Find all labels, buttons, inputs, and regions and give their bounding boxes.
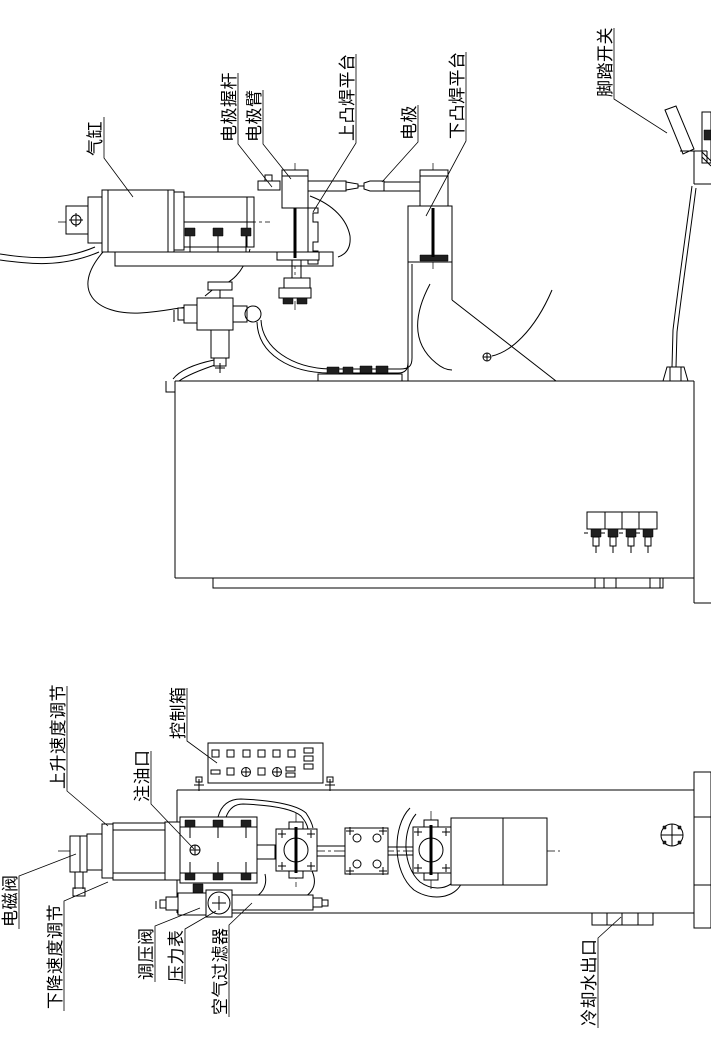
callout-electrode-text: 电极	[400, 105, 419, 140]
callout-air-filter-text: 空气过滤器	[211, 928, 230, 1016]
clamp-block	[345, 828, 388, 874]
pedal-plate	[665, 106, 694, 154]
callout-pressure-gauge: 压力表	[167, 911, 216, 984]
callout-foot-switch-text: 脚踏开关	[596, 27, 615, 97]
callout-cooling-outlet: 冷却水出口	[580, 917, 621, 1028]
callout-pressure-gauge-text: 压力表	[167, 930, 186, 983]
callout-upper-platform-text: 上凸焊平台	[338, 54, 357, 142]
welder-assembly-drawing: 气缸 电极握杆 电极臂 上凸焊平台 电极 下凸焊平台 脚踏开关	[0, 0, 711, 1063]
plan-view: 上升速度调节 控制箱 注油口 电磁阀 下降速度调节 调压阀 压力表 空气过滤器	[1, 684, 711, 1028]
callout-control-box-text: 控制箱	[169, 687, 188, 740]
front-panel-plan	[694, 772, 711, 928]
arm-bracket	[277, 252, 319, 298]
callout-rise-speed-text: 上升速度调节	[49, 684, 68, 789]
callout-descent-speed: 下降速度调节	[46, 882, 108, 1011]
callout-cooling-outlet-text: 冷却水出口	[580, 939, 599, 1027]
callout-air-cylinder: 气缸	[85, 117, 133, 197]
cad-drawing-page: 气缸 电极握杆 电极臂 上凸焊平台 电极 下凸焊平台 脚踏开关	[0, 0, 711, 1063]
callout-electrode-arm: 电极臂	[245, 90, 291, 180]
connector-manifold	[584, 512, 657, 553]
control-box	[194, 743, 335, 791]
table-mounting-pads	[318, 366, 402, 381]
arm-clamp-assemblies-plan	[257, 818, 547, 885]
air-cylinder-plan	[70, 817, 257, 896]
callout-air-cylinder-text: 气缸	[85, 121, 105, 156]
lower-arm-mount-plan	[451, 818, 547, 885]
side-view: 气缸 电极握杆 电极臂 上凸焊平台 电极 下凸焊平台 脚踏开关	[0, 27, 711, 603]
callout-pressure-valve-text: 调压阀	[137, 928, 156, 981]
callout-foot-switch: 脚踏开关	[596, 27, 667, 133]
cylinder-bolt-heads	[185, 228, 251, 236]
foot-pedal	[663, 106, 711, 381]
callout-solenoid-valve-text: 电磁阀	[1, 875, 20, 928]
platform-support	[408, 262, 556, 381]
callout-oil-port-text: 注油口	[133, 750, 152, 803]
callout-lower-platform-text: 下凸焊平台	[448, 52, 467, 140]
filter-body	[232, 895, 328, 910]
valve-unit-side	[174, 282, 261, 373]
callout-electrode-grip-rod-text: 电极握杆	[220, 72, 239, 142]
lower-platform-block	[408, 206, 452, 262]
machine-cabinet	[166, 381, 711, 603]
table-hole	[661, 824, 683, 846]
regulator-body	[160, 893, 206, 915]
callout-air-filter: 空气过滤器	[211, 903, 252, 1017]
callout-electrode: 电极	[382, 105, 419, 182]
cooling-water-outlet-fitting	[592, 913, 653, 925]
callout-rise-speed: 上升速度调节	[49, 684, 108, 826]
callout-electrode-arm-text: 电极臂	[245, 90, 264, 143]
cable-stand	[663, 367, 688, 381]
lower-electrode-group	[364, 170, 556, 381]
pedal-cable	[672, 186, 696, 367]
callout-descent-speed-text: 下降速度调节	[46, 904, 65, 1009]
